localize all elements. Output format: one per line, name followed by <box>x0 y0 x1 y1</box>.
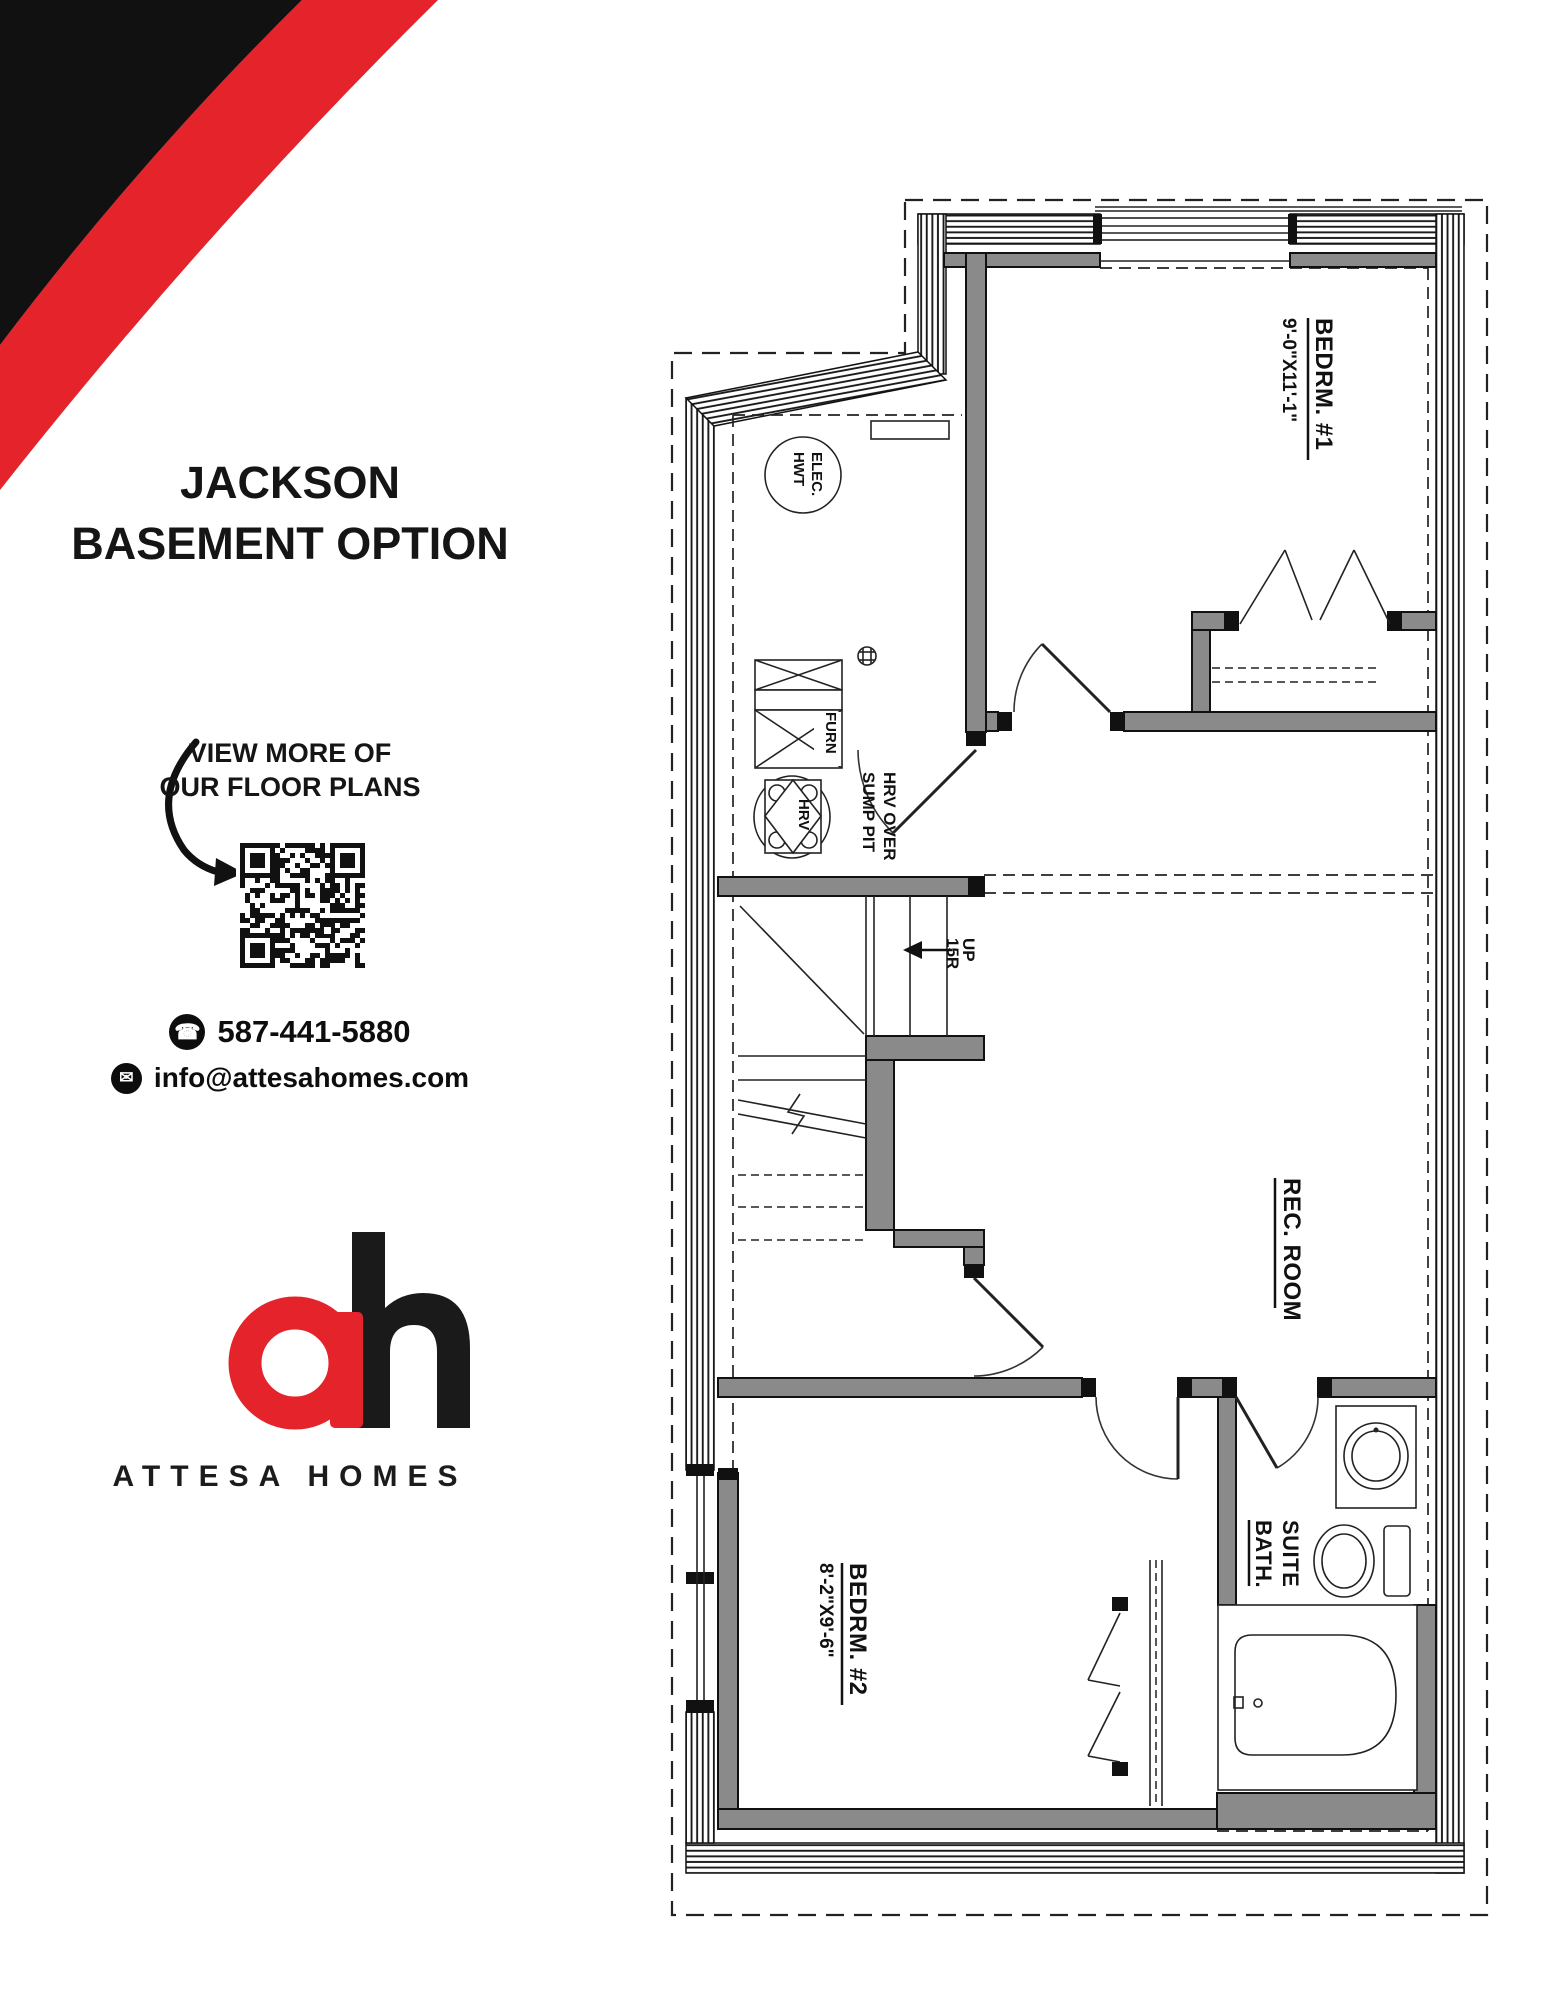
svg-text:BEDRM. #1: BEDRM. #1 <box>1310 318 1337 451</box>
wall-left-lower <box>686 1712 714 1843</box>
utility-door <box>893 750 976 833</box>
electrical-panel <box>871 421 949 439</box>
hrv-unit: HRV <box>754 776 830 858</box>
stair-break-mark <box>788 1094 804 1134</box>
svg-text:REC. ROOM: REC. ROOM <box>1278 1178 1305 1321</box>
bedroom2-north-wall <box>718 1378 1082 1397</box>
wall-left-upper <box>686 398 714 1470</box>
mail-icon: ✉ <box>111 1063 142 1094</box>
hrv-label: HRV <box>795 799 812 830</box>
bedroom2-label: BEDRM. #2 8'-2"X9'-6" <box>815 1563 871 1705</box>
inner-dashed-lines <box>733 268 1436 1831</box>
bath-door <box>1236 1397 1277 1468</box>
bath-fixtures <box>1218 1406 1417 1790</box>
bedroom1-label: BEDRM. #1 9'-0"X11'-1" <box>1278 318 1337 460</box>
qr-caption: VIEW MORE OF OUR FLOOR PLANS <box>48 736 532 804</box>
wall-bottom <box>686 1843 1464 1873</box>
suite-bath-label: SUITE BATH. <box>1249 1520 1303 1588</box>
svg-text:9'-0"X11'-1": 9'-0"X11'-1" <box>1278 318 1299 422</box>
stairs-label: UP 15R <box>943 938 978 969</box>
svg-text:15R: 15R <box>943 938 962 969</box>
title-line1: JACKSON <box>180 457 400 508</box>
bedroom1-closet-bifold <box>1240 550 1390 624</box>
logo-letter-h <box>352 1232 470 1428</box>
furnace: FURN <box>755 660 842 768</box>
phone-row: ☎ 587-441-5880 <box>48 1014 532 1050</box>
stair-arrow-head <box>903 941 922 959</box>
svg-text:8'-2"X9'-6": 8'-2"X9'-6" <box>815 1563 836 1658</box>
svg-text:SUITE: SUITE <box>1278 1520 1303 1587</box>
bedroom2-south-wall <box>718 1809 1217 1829</box>
floor-plan-canvas: UP 15R <box>0 0 1545 2000</box>
bath-west-wall <box>1218 1397 1236 1605</box>
stair-winder-line <box>740 906 864 1034</box>
wall-step-vertical <box>918 214 946 374</box>
toilet-bowl <box>1314 1525 1374 1597</box>
furnace-label: FURN <box>822 712 839 754</box>
phone-number: 587-441-5880 <box>217 1014 410 1050</box>
email-row: ✉ info@attesahomes.com <box>48 1062 532 1094</box>
stair-north-wall <box>718 877 984 896</box>
bedroom2-closet-bifold <box>1088 1613 1120 1762</box>
svg-text:FURN: FURN <box>822 712 839 754</box>
wall-right <box>1436 214 1464 1873</box>
brand-name: ATTESA HOMES <box>48 1460 532 1494</box>
utility-fixtures: ELEC. HWT FURN HRV <box>754 421 949 861</box>
stairs: UP 15R <box>738 896 978 1240</box>
toilet-tank <box>1384 1526 1410 1596</box>
svg-text:HRV: HRV <box>795 799 812 830</box>
qr-caption-line1: VIEW MORE OF <box>189 738 392 768</box>
email-address: info@attesahomes.com <box>154 1062 469 1094</box>
bedroom1-south-wall <box>1124 712 1436 731</box>
svg-text:BATH.: BATH. <box>1251 1520 1276 1588</box>
phone-icon: ☎ <box>169 1014 205 1050</box>
svg-text:ELEC.: ELEC. <box>808 452 825 496</box>
window-left <box>686 1464 714 1713</box>
page-title: JACKSON BASEMENT OPTION <box>48 452 532 574</box>
brand-swoosh <box>0 0 438 490</box>
logo-letter-a-stem <box>330 1312 363 1428</box>
stair-landing-door <box>974 1278 1043 1347</box>
svg-text:BEDRM. #2: BEDRM. #2 <box>844 1563 871 1696</box>
svg-text:HWT: HWT <box>790 452 807 486</box>
bathtub <box>1235 1635 1396 1755</box>
doors <box>858 644 1318 1479</box>
floor-drain-icon <box>858 647 876 665</box>
vanity <box>1336 1406 1416 1508</box>
attesa-logo <box>245 1232 470 1428</box>
qr-caption-line2: OUR FLOOR PLANS <box>160 772 421 802</box>
window-top <box>1100 218 1290 240</box>
svg-text:SUMP PIT: SUMP PIT <box>859 772 878 853</box>
rec-room-label: REC. ROOM <box>1275 1178 1305 1321</box>
bedroom1-door <box>1042 644 1110 712</box>
svg-text:HRV OVER: HRV OVER <box>880 772 899 861</box>
qr-code <box>236 839 369 972</box>
title-line2: BASEMENT OPTION <box>71 518 509 569</box>
